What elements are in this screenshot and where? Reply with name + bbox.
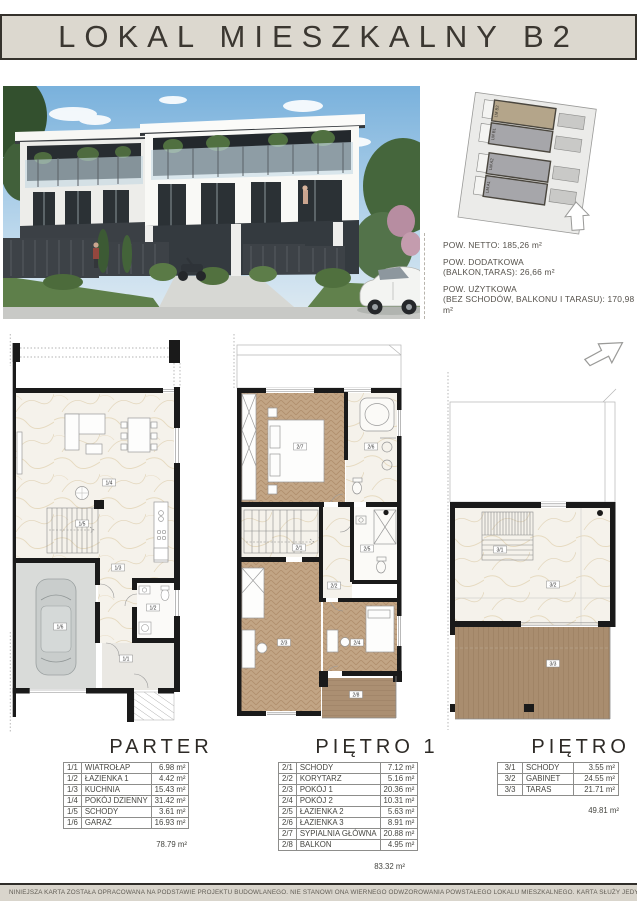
entry-steps [134, 692, 174, 720]
svg-text:2/5: 2/5 [364, 546, 371, 552]
kitchen-counter [154, 502, 168, 562]
road [3, 307, 420, 319]
floor-title-parter: PARTER [109, 736, 212, 759]
area-summary: POW. NETTO: 185,26 m² POW. DODATKOWA(BAL… [443, 240, 635, 321]
title-banner: LOKAL MIESZKALNY B2 [0, 14, 637, 60]
svg-text:1/6: 1/6 [57, 624, 64, 630]
footer-disclaimer: NINIEJSZA KARTA ZOSTAŁA OPRACOWANA NA PO… [0, 885, 637, 901]
floor-plan-parter: 1/4 1/5 1/3 1/6 1/2 1/1 [8, 332, 216, 736]
property-card-page: LOKAL MIESZKALNY B2 [0, 0, 637, 901]
svg-text:1/1: 1/1 [123, 656, 130, 662]
svg-text:1/4: 1/4 [106, 480, 113, 486]
area-netto: POW. NETTO: 185,26 m² [443, 240, 635, 251]
table-row: 2/1SCHODY7.12 m² [279, 763, 418, 774]
table-row: 2/6ŁAZIENKA 38.91 m² [279, 818, 418, 829]
room-table-pietro1: 2/1SCHODY7.12 m² 2/2KORYTARZ5.16 m² 2/3P… [278, 762, 418, 851]
svg-text:3/3: 3/3 [550, 661, 557, 667]
gabinet-floor [455, 508, 610, 625]
floor-total-parter: 78.79 m² [63, 840, 187, 849]
svg-text:1/5: 1/5 [79, 521, 86, 527]
room1-furniture [242, 568, 267, 668]
svg-text:2/4: 2/4 [354, 640, 361, 646]
table-row: 2/3POKÓJ 120.36 m² [279, 785, 418, 796]
table-row: 1/3KUCHNIA15.43 m² [64, 785, 189, 796]
table-row: 3/3TARAS21.71 m² [498, 785, 619, 796]
building-render-image [3, 86, 420, 319]
svg-text:2/3: 2/3 [281, 640, 288, 646]
svg-text:3/2: 3/2 [550, 582, 557, 588]
table-row: 1/1WIATROŁAP6.98 m² [64, 763, 189, 774]
table-row: 2/5ŁAZIENKA 25.63 m² [279, 807, 418, 818]
svg-text:2/7: 2/7 [297, 444, 304, 450]
table-row: 3/1SCHODY3.55 m² [498, 763, 619, 774]
roof-outline [237, 345, 401, 388]
floor-title-pietro2: PIĘTRO 2 [531, 736, 637, 759]
area-uzytkowa: POW. UŻYTKOWA(BEZ SCHODÓW, BALKONU I TAR… [443, 284, 635, 316]
table-row: 2/8BALKON4.95 m² [279, 840, 418, 851]
page-title: LOKAL MIESZKALNY B2 [58, 19, 579, 55]
area-dodatkowa: POW. DODATKOWA(BALKON,TARAS): 26,66 m² [443, 257, 635, 278]
table-row: 2/7SYPIALNIA GŁÓWNA20.88 m² [279, 829, 418, 840]
north-arrow-icon [583, 340, 626, 368]
svg-text:2/2: 2/2 [331, 583, 338, 589]
table-row: 1/6GARAŻ16.93 m² [64, 818, 189, 829]
svg-text:1/3: 1/3 [115, 565, 122, 571]
room-table-parter: 1/1WIATROŁAP6.98 m² 1/2ŁAZIENKA 14.42 m²… [63, 762, 189, 829]
wiatrolap-floor [102, 643, 174, 690]
roof-outline [450, 389, 616, 502]
svg-text:3/1: 3/1 [497, 547, 504, 553]
table-row: 3/2GABINET24.55 m² [498, 774, 619, 785]
table-row: 2/4POKÓJ 210.31 m² [279, 796, 418, 807]
floor-total-pietro2: 49.81 m² [497, 806, 619, 815]
svg-text:2/6: 2/6 [368, 444, 375, 450]
site-plan-map: LM B2 LM B1 LM A2 LM A1 [446, 92, 606, 237]
dashed-separator [424, 233, 425, 319]
stairs-floor [241, 507, 321, 557]
floor-title-pietro1: PIĘTRO 1 [315, 736, 438, 759]
table-row: 2/2KORYTARZ5.16 m² [279, 774, 418, 785]
svg-text:2/1: 2/1 [296, 545, 303, 551]
floor-plan-pietro1: 2/7 2/6 2/1 2/2 2/5 2/3 2/4 2/8 [226, 330, 428, 740]
floor-plan-pietro2: 3/1 3/2 3/3 [438, 330, 637, 740]
floor-total-pietro1: 83.32 m² [278, 862, 405, 871]
room-table-pietro2: 3/1SCHODY3.55 m² 3/2GABINET24.55 m² 3/3T… [497, 762, 619, 796]
svg-text:1/2: 1/2 [150, 605, 157, 611]
patio-outline [20, 348, 180, 388]
table-row: 1/2ŁAZIENKA 14.42 m² [64, 774, 189, 785]
svg-text:2/8: 2/8 [353, 692, 360, 698]
table-row: 1/5SCHODY3.61 m² [64, 807, 189, 818]
table-row: 1/4POKÓJ DZIENNY31.42 m² [64, 796, 189, 807]
